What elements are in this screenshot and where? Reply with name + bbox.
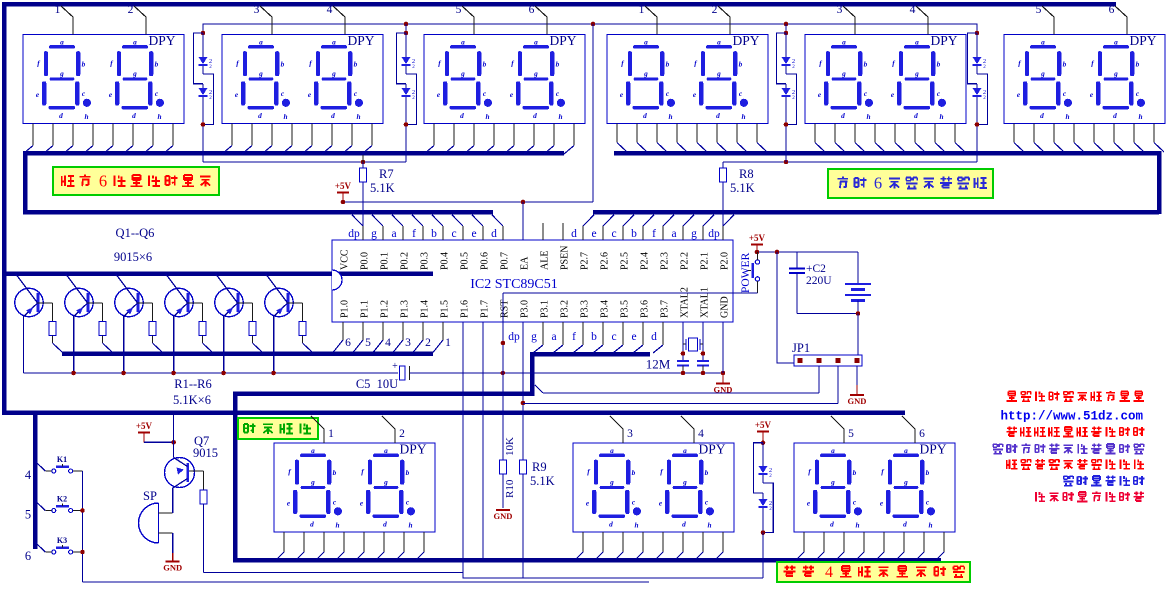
svg-text:e: e [631,331,636,343]
svg-text:K3: K3 [57,536,67,545]
svg-text:P1.2: P1.2 [380,300,391,318]
svg-text:+5V: +5V [749,233,766,243]
svg-text:R8: R8 [739,167,754,181]
svg-text:5.1K: 5.1K [730,181,755,195]
svg-text:IC2 STC89C51: IC2 STC89C51 [470,277,558,292]
svg-text:g: g [310,478,315,487]
svg-text:a: a [644,38,648,47]
svg-text:4: 4 [25,468,32,482]
svg-text:GND: GND [848,396,867,406]
svg-text:h: h [157,112,161,121]
svg-text:P1.7: P1.7 [480,300,491,318]
svg-text:d: d [310,520,314,529]
svg-text:g: g [682,478,687,487]
svg-text:b: b [1063,60,1067,69]
svg-text:d: d [651,331,657,343]
svg-text:a: a [717,38,721,47]
svg-text:a: a [332,38,336,47]
svg-text:b: b [431,228,437,240]
svg-text:5.1K×6: 5.1K×6 [173,393,211,407]
svg-text:h: h [634,521,638,530]
svg-text:dp: dp [508,331,520,343]
svg-text:3: 3 [405,337,411,349]
svg-text:6: 6 [345,337,351,349]
svg-text:b: b [937,60,941,69]
svg-text:b: b [739,60,743,69]
svg-text:P1.3: P1.3 [400,300,411,318]
svg-text:dp: dp [348,228,360,240]
svg-text:P3.0: P3.0 [520,300,531,318]
svg-text:P0.0: P0.0 [360,252,371,270]
svg-text:R1--R6: R1--R6 [174,377,212,391]
svg-text:g: g [531,331,537,343]
svg-text:d: d [914,111,918,120]
svg-text:h: h [84,112,88,121]
svg-text:P3.5: P3.5 [620,300,631,318]
svg-text:a: a [831,446,835,455]
svg-text:P1.4: P1.4 [420,300,431,318]
svg-text:d: d [609,520,613,529]
svg-text:d: d [571,228,577,240]
svg-text:d: d [331,111,335,120]
svg-text:d: d [682,520,686,529]
svg-text:a: a [915,38,919,47]
svg-text:R10: R10 [504,479,516,498]
svg-text:P0.6: P0.6 [480,252,491,270]
svg-text:h: h [707,521,711,530]
svg-text:1: 1 [55,4,61,16]
svg-text:b: b [666,60,670,69]
svg-text:Q1--Q6: Q1--Q6 [116,226,155,240]
svg-text:2: 2 [209,89,212,96]
svg-text:2: 2 [425,337,431,349]
svg-text:d: d [830,520,834,529]
svg-text:h: h [855,521,859,530]
svg-text:K1: K1 [57,455,67,464]
svg-text:f: f [412,228,416,240]
svg-text:a: a [461,38,465,47]
svg-text:a: a [904,446,908,455]
svg-text:g: g [1040,69,1045,78]
svg-text:d: d [1113,111,1117,120]
svg-text:g: g [830,478,835,487]
svg-text:h: h [558,112,562,121]
svg-text:4: 4 [327,4,333,16]
svg-text:6: 6 [1109,4,1115,16]
svg-text:h: h [1065,112,1069,121]
svg-text:P2.1: P2.1 [700,252,711,270]
svg-text:g: g [716,69,721,78]
svg-text:EA: EA [520,256,531,270]
svg-text:POWER: POWER [740,252,752,293]
svg-text:b: b [926,468,930,477]
svg-text:P0.3: P0.3 [420,252,431,270]
svg-text:P1.1: P1.1 [360,300,371,318]
svg-text:6: 6 [919,428,925,440]
svg-text:4: 4 [825,564,833,581]
svg-text:ALE: ALE [540,251,551,270]
svg-text:b: b [406,468,410,477]
svg-text:P1.0: P1.0 [340,300,351,318]
svg-text:a: a [551,331,556,343]
svg-text:b: b [82,60,86,69]
svg-text:g: g [609,478,614,487]
svg-text:DPY: DPY [1129,33,1156,48]
svg-text:g: g [1113,69,1118,78]
svg-text:d: d [1040,111,1044,120]
svg-text:2: 2 [128,4,134,16]
svg-text:C5 10U: C5 10U [356,377,398,391]
svg-text:b: b [1136,60,1140,69]
svg-text:P3.2: P3.2 [560,300,571,318]
svg-text:5: 5 [848,428,854,440]
svg-text:b: b [354,60,358,69]
svg-text:R9: R9 [532,460,547,474]
svg-text:P2.5: P2.5 [620,252,631,270]
svg-text:2: 2 [769,467,772,474]
svg-text:a: a [1114,38,1118,47]
svg-text:GND: GND [163,563,182,573]
svg-text:5: 5 [456,4,462,16]
svg-text:6: 6 [529,4,535,16]
svg-text:a: a [1041,38,1045,47]
svg-text:P0.4: P0.4 [440,252,451,270]
svg-text:g: g [331,69,336,78]
svg-text:g: g [643,69,648,78]
svg-text:+5V: +5V [755,420,772,430]
svg-text:R7: R7 [379,167,394,181]
svg-text:h: h [408,521,412,530]
svg-text:g: g [691,228,697,240]
svg-text:6: 6 [25,549,31,563]
svg-text:RST: RST [500,300,511,318]
svg-text:2: 2 [209,58,212,65]
svg-text:3: 3 [627,428,633,440]
svg-text:+: + [392,361,398,372]
svg-text:a: a [391,228,396,240]
svg-text:+5V: +5V [335,181,352,191]
svg-text:b: b [333,468,337,477]
svg-text:h: h [1138,112,1142,121]
svg-text:g: g [371,228,377,240]
svg-text:f: f [572,331,576,343]
svg-text:P1.6: P1.6 [460,300,471,318]
svg-text:SP: SP [143,489,157,503]
svg-text:f: f [652,228,656,240]
svg-text:g: g [460,69,465,78]
svg-text:220U: 220U [806,275,832,287]
svg-text:K2: K2 [57,495,67,504]
svg-text:g: g [903,478,908,487]
svg-text:b: b [632,468,636,477]
svg-text:d: d [460,111,464,120]
svg-text:P2.2: P2.2 [680,252,691,270]
svg-text:b: b [281,60,285,69]
svg-text:P0.7: P0.7 [500,252,511,270]
svg-text:h: h [866,112,870,121]
svg-text:2: 2 [412,89,415,96]
svg-text:+C2: +C2 [806,263,826,275]
svg-text:P3.6: P3.6 [640,300,651,318]
svg-text:1: 1 [445,337,451,349]
svg-text:b: b [853,468,857,477]
svg-text:P3.4: P3.4 [600,300,611,318]
svg-text:9015: 9015 [193,446,218,460]
svg-text:a: a [842,38,846,47]
svg-text:DPY: DPY [919,442,946,457]
svg-text:g: g [383,478,388,487]
svg-text:+5V: +5V [136,421,153,431]
svg-text:4: 4 [385,337,391,349]
svg-text:g: g [59,69,64,78]
svg-text:9015×6: 9015×6 [114,250,152,264]
svg-text:d: d [491,228,497,240]
svg-text:h: h [283,112,287,121]
svg-text:P2.6: P2.6 [600,252,611,270]
svg-text:a: a [311,446,315,455]
svg-text:3: 3 [837,4,843,16]
svg-text:g: g [914,69,919,78]
svg-text:c: c [611,331,616,343]
svg-text:d: d [383,520,387,529]
svg-text:e: e [591,228,596,240]
svg-text:PSEN: PSEN [560,246,571,270]
svg-text:http://www.51dz.com: http://www.51dz.com [1000,410,1143,424]
svg-text:P3.3: P3.3 [580,300,591,318]
svg-text:h: h [668,112,672,121]
svg-text:b: b [864,60,868,69]
svg-text:b: b [631,228,637,240]
svg-text:DPY: DPY [399,442,426,457]
svg-text:10K: 10K [504,437,516,456]
svg-text:5: 5 [25,508,31,522]
svg-text:5.1K: 5.1K [530,474,555,488]
svg-text:3: 3 [254,4,260,16]
svg-text:P1.5: P1.5 [440,300,451,318]
svg-text:a: a [671,228,676,240]
svg-text:e: e [471,228,476,240]
svg-text:d: d [258,111,262,120]
svg-text:a: a [133,38,137,47]
svg-text:DPY: DPY [930,33,957,48]
svg-text:GND: GND [494,511,513,521]
svg-text:a: a [60,38,64,47]
svg-text:P2.4: P2.4 [640,252,651,270]
svg-text:XTAL2: XTAL2 [680,287,691,318]
svg-text:h: h [939,112,943,121]
svg-text:1: 1 [328,428,334,440]
svg-text:h: h [485,112,489,121]
svg-text:b: b [705,468,709,477]
svg-text:GND: GND [720,296,731,318]
svg-text:6: 6 [874,173,882,192]
svg-text:h: h [928,521,932,530]
svg-text:2: 2 [983,89,986,96]
svg-text:12M: 12M [646,357,671,372]
svg-text:2: 2 [983,58,986,65]
svg-text:P3.1: P3.1 [540,300,551,318]
svg-text:d: d [132,111,136,120]
svg-text:g: g [841,69,846,78]
svg-text:P3.7: P3.7 [660,300,671,318]
svg-text:1: 1 [639,4,645,16]
svg-text:h: h [741,112,745,121]
svg-text:c: c [451,228,456,240]
svg-text:d: d [841,111,845,120]
svg-text:g: g [258,69,263,78]
svg-text:5.1K: 5.1K [370,181,395,195]
svg-text:P0.1: P0.1 [380,252,391,270]
svg-text:DPY: DPY [732,33,759,48]
svg-text:XTAL1: XTAL1 [700,287,711,318]
svg-text:DPY: DPY [347,33,374,48]
svg-text:g: g [533,69,538,78]
svg-text:b: b [483,60,487,69]
svg-text:JP1: JP1 [792,341,810,355]
svg-text:5: 5 [365,337,371,349]
svg-text:a: a [259,38,263,47]
svg-text:d: d [903,520,907,529]
svg-text:P2.0: P2.0 [720,252,731,270]
svg-text:4: 4 [910,4,916,16]
svg-text:2: 2 [712,4,718,16]
svg-text:a: a [610,446,614,455]
svg-text:b: b [155,60,159,69]
svg-text:DPY: DPY [148,33,175,48]
svg-text:P0.2: P0.2 [400,252,411,270]
svg-text:4: 4 [698,428,704,440]
svg-text:d: d [716,111,720,120]
svg-text:6: 6 [99,171,107,190]
svg-text:2: 2 [769,500,772,507]
svg-text:h: h [356,112,360,121]
svg-text:2: 2 [399,428,405,440]
svg-text:5: 5 [1036,4,1042,16]
svg-text:P0.5: P0.5 [460,252,471,270]
svg-text:P2.7: P2.7 [580,252,591,270]
svg-text:a: a [534,38,538,47]
svg-text:b: b [591,331,597,343]
svg-text:DPY: DPY [549,33,576,48]
svg-text:a: a [384,446,388,455]
svg-text:2: 2 [792,58,795,65]
svg-text:d: d [533,111,537,120]
svg-text:VCC: VCC [340,249,351,270]
svg-text:b: b [556,60,560,69]
svg-text:dp: dp [708,228,720,240]
svg-text:c: c [611,228,616,240]
svg-text:d: d [643,111,647,120]
svg-text:g: g [132,69,137,78]
svg-text:d: d [59,111,63,120]
svg-text:h: h [335,521,339,530]
svg-text:P2.3: P2.3 [660,252,671,270]
svg-text:2: 2 [412,58,415,65]
svg-text:2: 2 [792,89,795,96]
svg-text:a: a [683,446,687,455]
svg-text:DPY: DPY [698,442,725,457]
